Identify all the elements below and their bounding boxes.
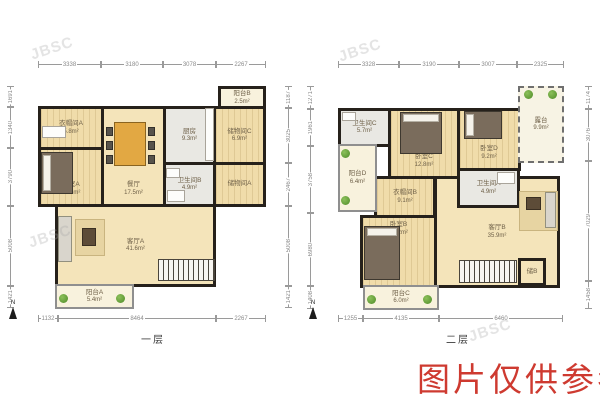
watermark: JBSC: [28, 34, 75, 64]
f1-dim-right-5: 1421: [284, 286, 293, 308]
chair: [106, 155, 113, 164]
f1-kitchen-counter: [205, 108, 214, 161]
north-arrow-icon: [9, 307, 17, 319]
f2-dim-left-1: 1271: [306, 86, 315, 109]
pillow: [403, 114, 439, 122]
f1-dim-right-4: 5008: [284, 206, 293, 286]
room-area: 6.4m²: [349, 179, 367, 186]
f2-dim-bottom-1: 1255: [338, 314, 363, 323]
f1-coffee-table: [82, 228, 96, 246]
plant-icon: [423, 295, 432, 304]
plant-icon: [116, 294, 125, 303]
f1-dim-top-2: 3180: [101, 60, 163, 69]
f1-dim-right-1: 1187: [284, 86, 293, 108]
f2-bed-b: [364, 226, 400, 280]
north-label: N: [6, 300, 20, 306]
f1-dim-right-3: 2467: [284, 163, 293, 206]
room-label: 卫生间C: [352, 120, 376, 128]
f1-dim-top-1: 3338: [38, 60, 101, 69]
f2-dim-left-4: 6980: [306, 213, 315, 286]
room-area: 17.5m²: [124, 190, 143, 197]
chair: [148, 127, 155, 136]
f1-dim-top-4: 2267: [216, 60, 266, 69]
f2-dim-top-3: 3007: [459, 60, 517, 69]
f1-bath-fixture: [166, 168, 180, 178]
f1-dim-bottom-1: 1132: [38, 314, 58, 323]
room-label: 阳台D: [349, 170, 367, 178]
f1-dim-left-2: 1340: [6, 107, 15, 148]
f2-armchair: [526, 197, 541, 210]
f1-dim-bottom-2: 8464: [58, 314, 216, 323]
f2-dim-left-2: 1961: [306, 109, 315, 146]
f1-stairs: [158, 259, 215, 281]
room-label: 储物间C: [227, 128, 251, 136]
room-label: 衣帽间B: [393, 189, 417, 197]
room-label: 露台: [533, 117, 548, 125]
f2-dim-right-1: 1174: [584, 86, 593, 109]
room-area: 2.5m²: [233, 99, 250, 106]
plant-icon: [367, 295, 376, 304]
room-label: 客厅A: [126, 238, 145, 246]
room-area: 9.2m²: [480, 154, 498, 161]
f2-dim-top-2: 3190: [399, 60, 459, 69]
pillow: [466, 114, 474, 136]
room-label: 卫生间B: [178, 177, 202, 185]
f1-dim-left-3: 3790: [6, 148, 15, 206]
f1-dim-bottom-3: 2267: [216, 314, 266, 323]
disclaimer-text: 图片仅供参考: [417, 353, 600, 400]
room-label: 厨房: [182, 128, 197, 136]
room-area: 9.9m²: [533, 125, 548, 132]
plant-icon: [59, 294, 68, 303]
plant-icon: [341, 149, 350, 158]
floorplan-canvas: JBSC JBSC JBSC JBSC 3338 3180 3078 2267 …: [0, 0, 600, 400]
room-area: 9.3m²: [182, 136, 197, 143]
chair: [106, 127, 113, 136]
chair: [148, 155, 155, 164]
room-label: 储B: [527, 268, 538, 276]
room-label: 卧室C: [415, 153, 434, 161]
room-area: 12.8m²: [415, 162, 434, 169]
room-area: 5.7m²: [352, 128, 376, 135]
chair: [106, 141, 113, 150]
f1-dim-top-3: 3078: [163, 60, 216, 69]
f1-north-compass: N: [6, 300, 20, 319]
f2-dim-bottom-2: 4135: [363, 314, 439, 323]
f2-stairs: [459, 260, 517, 283]
f2-bed-c: [400, 112, 442, 154]
f2-dim-top-4: 2325: [517, 60, 564, 69]
f2-bed-d: [464, 111, 502, 139]
f1-room-storage-a: 储物间A: [213, 162, 266, 207]
room-area: 9.1m²: [393, 198, 417, 205]
f1-bath-fixture: [167, 190, 185, 202]
f1-caption: 一层: [141, 331, 165, 346]
f1-dim-left-4: 5008: [6, 206, 15, 286]
plant-icon: [341, 196, 350, 205]
room-label: 客厅B: [488, 224, 507, 232]
chair: [148, 141, 155, 150]
f1-room-storage-c: 储物间C6.9m²: [213, 106, 266, 165]
room-label: 阳台C: [392, 290, 410, 298]
f2-dim-left-3: 3758: [306, 146, 315, 213]
f1-dim-left-1: 1691: [6, 86, 15, 107]
f1-bed-a: [41, 152, 73, 194]
north-arrow-icon: [309, 307, 317, 319]
north-label: N: [306, 300, 320, 306]
f2-north-compass: N: [306, 300, 320, 319]
room-area: 6.0m²: [392, 298, 410, 305]
f1-dim-right-2: 3025: [284, 108, 293, 163]
plant-icon: [524, 90, 533, 99]
room-area: 6.9m²: [227, 136, 251, 143]
f2-room-storage-b: 储B: [518, 258, 546, 286]
f2-bath-fixture: [497, 172, 515, 184]
f2-bath-fixture: [342, 112, 356, 121]
room-area: 41.6m²: [126, 246, 145, 253]
room-label: 餐厅: [124, 181, 143, 189]
room-label: 阳台A: [86, 289, 103, 297]
plant-icon: [548, 90, 557, 99]
room-area: 5.4m²: [86, 297, 103, 304]
f1-dining-table: [114, 122, 146, 166]
f2-sofa: [545, 192, 556, 228]
room-label: 卧室D: [480, 145, 498, 153]
room-area: 35.9m²: [488, 233, 507, 240]
f2-room-cloakroom-b: 衣帽间B9.1m²: [374, 176, 436, 218]
room-area: 4.9m²: [477, 189, 501, 196]
room-label: 阳台B: [233, 90, 250, 98]
pillow: [367, 228, 397, 236]
f2-caption: 二层: [446, 331, 470, 346]
f2-dim-right-2: 3076: [584, 109, 593, 161]
f2-dim-right-4: 1458: [584, 281, 593, 309]
pillow: [43, 155, 51, 191]
room-label: 储物间A: [228, 180, 252, 188]
f1-wardrobe: [42, 126, 66, 138]
f2-dim-right-3: 7029: [584, 161, 593, 281]
